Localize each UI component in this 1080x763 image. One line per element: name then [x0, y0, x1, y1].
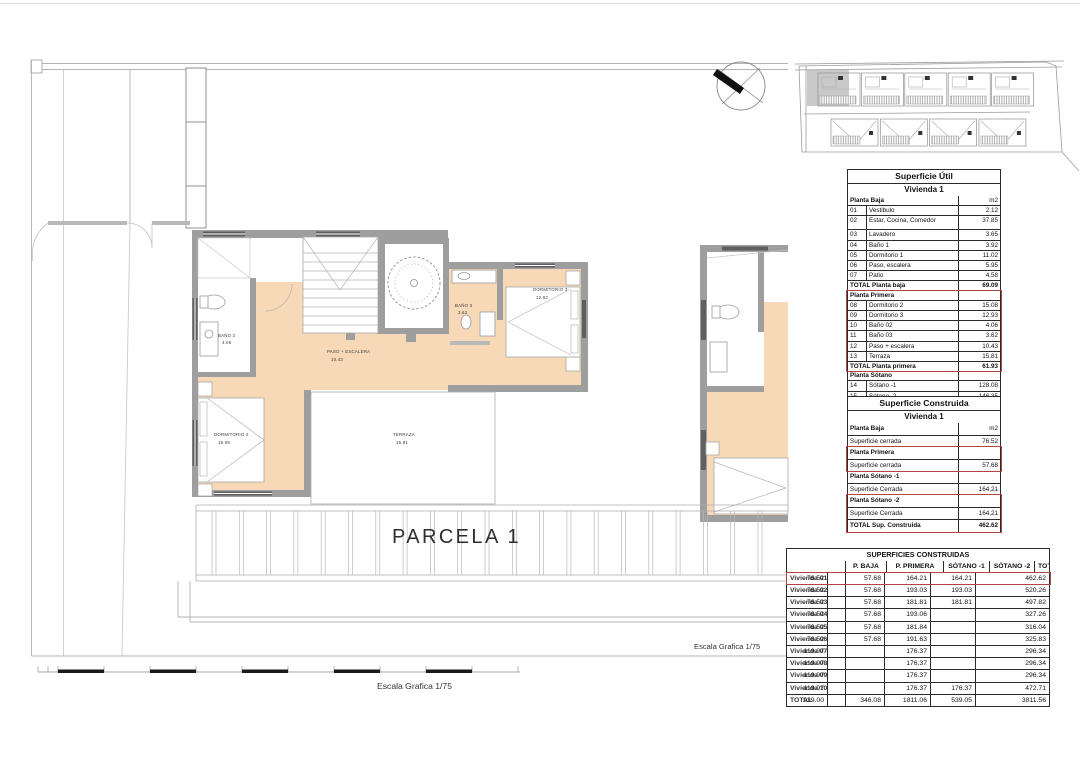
row-label: Vivienda 03 [787, 597, 846, 608]
value-cell: 296.34 [976, 670, 1049, 681]
value-cell: 316.04 [976, 622, 1049, 633]
room-area-bano3: 3.62 [458, 310, 468, 315]
row-number: 11 [848, 331, 867, 340]
construida-value [959, 471, 1000, 483]
construida-value [959, 495, 1000, 507]
table-section: Planta Sótano -1Superficie Cerrada164,21 [848, 471, 1000, 495]
site-plan-overview [795, 61, 1079, 171]
construida-row: Planta Sótano -2 [848, 495, 1000, 507]
construida-label: Superficie Cerrada [848, 484, 959, 496]
table-row-vivienda-10: Vivienda 10119.97176.37176.37472.71 [787, 682, 1049, 694]
room-name: Estar, Cocina, Comedor [867, 216, 959, 229]
table-row-vivienda-08: Vivienda 08119.97176.37296.34 [787, 657, 1049, 669]
bed-dormitorio2 [198, 382, 264, 496]
room-name: Sótano -1 [867, 381, 959, 390]
section-header: Planta Baja [848, 196, 959, 205]
room-area: 15.08 [959, 301, 1000, 310]
room-name: Baño 03 [867, 331, 959, 340]
room-label-dormitorio2: DORMITORIO 2 [214, 432, 249, 437]
row-label: Vivienda 05 [787, 622, 846, 633]
fence-element [32, 68, 206, 261]
table-title-row: Superficie Útil [848, 170, 1000, 183]
room-area: 11.02 [959, 251, 1000, 260]
superficies-construidas-table: SUPERFICIES CONSTRUIDAS P. BAJAP. PRIMER… [786, 548, 1050, 707]
room-label-dormitorio3: DORMITORIO 3 [533, 287, 568, 292]
construida-label: Superficie cerrada [848, 460, 959, 472]
room-area: 37.85 [959, 216, 1000, 229]
table-row-total: TOTAL939.00346.081811.06539.053811.56 [787, 694, 1049, 706]
room-area: 3.92 [959, 241, 1000, 250]
section-header-row: Planta Primera [848, 291, 1000, 300]
value-cell: 3811.56 [976, 695, 1049, 706]
construida-row: Planta Bajam2 [848, 423, 1000, 435]
row-number: 13 [848, 352, 867, 361]
value-cell: 181.81 [885, 597, 931, 608]
construida-row: Superficie cerrada57.68 [848, 459, 1000, 472]
room-label-terraza: TERRAZA [393, 432, 415, 437]
row-number: 02 [848, 216, 867, 229]
staircase [303, 237, 378, 333]
value-cell: 191.63 [885, 634, 931, 645]
room-area: 5.95 [959, 261, 1000, 270]
room-label-bano2: BAÑO 2 [218, 333, 236, 338]
row-number: 01 [848, 206, 867, 215]
construida-value: m2 [959, 423, 1000, 435]
construida-label: Planta Sótano -1 [848, 471, 959, 483]
room-label-paso: PASO + ESCALERA [327, 349, 370, 354]
value-cell: 539.05 [931, 695, 976, 706]
row-number: 04 [848, 241, 867, 250]
table-section: Planta Sótano -2Superficie Cerrada164,21… [848, 495, 1000, 532]
value-cell: 520.26 [976, 585, 1049, 596]
unit-cell [959, 291, 1000, 300]
section-header: Planta Sótano [848, 371, 959, 380]
construida-value: 164,21 [959, 484, 1000, 496]
room-area-terraza: 15.81 [396, 440, 408, 445]
area-row: 12Paso + escalera10.43 [848, 341, 1000, 351]
column-header: SÓTANO -2 [990, 561, 1035, 572]
scale-bar [38, 666, 520, 673]
room-name: Vestibulo [867, 206, 959, 215]
row-label: Vivienda 02 [787, 585, 846, 596]
value-cell: 181.81 [931, 597, 976, 608]
total-value: 69.09 [959, 281, 1000, 290]
column-header: TOTAL [1035, 561, 1049, 572]
value-cell [931, 646, 976, 657]
value-cell: 176.37 [931, 683, 976, 694]
room-area: 3.65 [959, 230, 1000, 239]
table-subtitle: Vivienda 1 [848, 411, 1000, 423]
area-row: 14Sótano -1128.08 [848, 380, 1000, 390]
value-cell: 193.06 [885, 609, 931, 620]
room-name: Dormitorio 1 [867, 251, 959, 260]
row-number: 08 [848, 301, 867, 310]
room-name: Baño 02 [867, 321, 959, 330]
value-cell [931, 609, 976, 620]
area-row: 09Dormitorio 312.93 [848, 310, 1000, 320]
construida-value: 462.62 [959, 520, 1000, 532]
area-row: 05Dormitorio 111.02 [848, 250, 1000, 260]
superficie-util-table: Superficie Útil Vivienda 1 Planta Bajam2… [847, 169, 1001, 412]
table-row-vivienda-04: Vivienda 0476.5257.68193.06327.26 [787, 608, 1049, 620]
terraza-area [311, 392, 495, 504]
total-label: TOTAL Planta primera [848, 362, 959, 371]
area-row: 13Terraza15.81 [848, 351, 1000, 361]
room-area: 15.81 [959, 352, 1000, 361]
row-number: 03 [848, 230, 867, 239]
patio-tree-icon [388, 257, 440, 309]
row-label: Vivienda 01 [787, 573, 846, 584]
construida-row: Superficie cerrada76.52 [848, 435, 1000, 448]
area-row: 08Dormitorio 215.08 [848, 300, 1000, 310]
unit-cell: m2 [959, 196, 1000, 205]
construida-row: Planta Sótano -1 [848, 471, 1000, 483]
room-area: 12.93 [959, 311, 1000, 320]
column-header-row: P. BAJAP. PRIMERASÓTANO -1SÓTANO -2TOTAL [787, 561, 1049, 572]
area-row: 04Baño 13.92 [848, 240, 1000, 250]
table-title-row: Superficie Construida [848, 397, 1000, 410]
room-area: 128.08 [959, 381, 1000, 390]
scale-label-plan: Escala Grafica 1/75 [694, 642, 760, 651]
unit-cell [959, 371, 1000, 380]
row-label: Vivienda 04 [787, 609, 846, 620]
area-row: 01Vestibulo2.12 [848, 205, 1000, 215]
value-cell: 497.82 [976, 597, 1049, 608]
construida-label: Planta Sótano -2 [848, 495, 959, 507]
wardrobe [198, 238, 250, 278]
construida-label: Planta Primera [848, 447, 959, 459]
area-row: 07Patio4.58 [848, 270, 1000, 280]
row-number: 09 [848, 311, 867, 320]
construida-label: Planta Baja [848, 423, 959, 435]
row-label: Vivienda 10 [787, 683, 846, 694]
construida-row: Planta Primera [848, 447, 1000, 459]
construida-label: Superficie Cerrada [848, 508, 959, 520]
room-label-bano3: BAÑO 3 [455, 303, 473, 308]
construida-row: Superficie Cerrada164,21 [848, 507, 1000, 520]
table-row-vivienda-02: Vivienda 0276.5257.68193.03193.03520.26 [787, 584, 1049, 596]
value-cell: 472.71 [976, 683, 1049, 694]
construida-label: TOTAL Sup. Construida [848, 520, 959, 532]
table-subtitle-row: Vivienda 1 [848, 410, 1000, 423]
total-row: TOTAL Planta baja69.09 [848, 280, 1000, 290]
room-area: 4.58 [959, 271, 1000, 280]
value-cell: 176.37 [885, 683, 931, 694]
row-number: 06 [848, 261, 867, 270]
room-name: Dormitorio 2 [867, 301, 959, 310]
room-area: 2.12 [959, 206, 1000, 215]
row-number: 14 [848, 381, 867, 390]
room-area-bano2: 4.06 [222, 340, 232, 345]
room-name: Baño 1 [867, 241, 959, 250]
value-cell: 193.03 [885, 585, 931, 596]
superficie-construida-table: Superficie Construida Vivienda 1 Planta … [847, 396, 1001, 533]
room-area-dormitorio2: 15.08 [218, 440, 230, 445]
table-row-vivienda-09: Vivienda 09119.97176.37296.34 [787, 669, 1049, 681]
value-cell [931, 622, 976, 633]
column-header: SÓTANO -1 [944, 561, 990, 572]
room-name: Paso, escalera [867, 261, 959, 270]
row-label: Vivienda 06 [787, 634, 846, 645]
table-title-row: SUPERFICIES CONSTRUIDAS [787, 549, 1049, 561]
value-cell: 164.21 [931, 573, 976, 584]
construida-value [959, 447, 1000, 459]
value-cell: 164.21 [885, 573, 931, 584]
row-label: TOTAL [787, 695, 846, 706]
area-row: 02Estar, Cocina, Comedor37.85 [848, 215, 1000, 229]
room-area: 10.43 [959, 342, 1000, 351]
table-section: Planta Bajam2Superficie cerrada76.52 [848, 423, 1000, 447]
section-header-row: Planta Sótano [848, 371, 1000, 380]
total-value: 61.93 [959, 362, 1000, 371]
construida-row: Superficie Cerrada164,21 [848, 483, 1000, 496]
value-cell: 176.37 [885, 670, 931, 681]
table-subtitle: Vivienda 1 [848, 184, 1000, 196]
table-title: Superficie Útil [848, 170, 1000, 183]
room-name: Lavadero [867, 230, 959, 239]
row-label: Vivienda 07 [787, 646, 846, 657]
table-row-vivienda-05: Vivienda 0576.5257.68181.84316.04 [787, 621, 1049, 633]
construida-value: 76.52 [959, 436, 1000, 448]
value-cell: 193.03 [931, 585, 976, 596]
value-cell: 176.37 [885, 646, 931, 657]
column-header: P. BAJA [846, 561, 887, 572]
room-name: Terraza [867, 352, 959, 361]
value-cell: 325.83 [976, 634, 1049, 645]
row-label: Vivienda 09 [787, 670, 846, 681]
construida-label: Superficie cerrada [848, 436, 959, 448]
value-cell: 176.37 [885, 658, 931, 669]
room-name: Patio [867, 271, 959, 280]
row-number: 12 [848, 342, 867, 351]
value-cell: 462.62 [976, 573, 1049, 584]
column-header [787, 561, 846, 572]
table-title: Superficie Construida [848, 397, 1000, 410]
row-number: 05 [848, 251, 867, 260]
value-cell [931, 658, 976, 669]
table-row-vivienda-06: Vivienda 0676.5257.68191.63325.83 [787, 633, 1049, 645]
room-name: Paso + escalera [867, 342, 959, 351]
section-header: Planta Primera [848, 291, 959, 300]
area-row: 06Paso, escalera5.95 [848, 260, 1000, 270]
table-row-vivienda-01: Vivienda 0176.5257.68164.21164.21462.62 [787, 572, 1049, 584]
value-cell: 296.34 [976, 646, 1049, 657]
value-cell: 181.84 [885, 622, 931, 633]
scale-label-bar: Escala Grafica 1/75 [377, 681, 452, 691]
table-section: Planta Bajam201Vestibulo2.1202Estar, Coc… [848, 196, 1000, 291]
construida-row: TOTAL Sup. Construida462.62 [848, 519, 1000, 532]
construida-value: 164,21 [959, 508, 1000, 520]
row-number: 07 [848, 271, 867, 280]
area-row: 03Lavadero3.65 [848, 229, 1000, 239]
table-section: Planta PrimeraSuperficie cerrada57.68 [848, 447, 1000, 471]
construida-value: 57.68 [959, 460, 1000, 472]
value-cell [931, 634, 976, 645]
area-row: 10Baño 024.06 [848, 320, 1000, 330]
total-row: TOTAL Planta primera61.93 [848, 361, 1000, 371]
table-section: Planta Primera08Dormitorio 215.0809Dormi… [848, 291, 1000, 372]
column-header: P. PRIMERA [887, 561, 944, 572]
room-name: Dormitorio 3 [867, 311, 959, 320]
plan-sheet: BAÑO 2 4.06 PASO + ESCALERA 10.43 DORMIT… [0, 0, 1080, 763]
section-header-row: Planta Bajam2 [848, 196, 1000, 205]
row-label: Vivienda 08 [787, 658, 846, 669]
table-title: SUPERFICIES CONSTRUIDAS [787, 549, 1049, 561]
row-number: 10 [848, 321, 867, 330]
value-cell: 1811.06 [885, 695, 931, 706]
table-row-vivienda-07: Vivienda 07119.97176.37296.34 [787, 645, 1049, 657]
room-area-paso: 10.43 [331, 357, 343, 362]
room-area: 3.62 [959, 331, 1000, 340]
total-label: TOTAL Planta baja [848, 281, 959, 290]
value-cell [931, 670, 976, 681]
room-area: 4.06 [959, 321, 1000, 330]
value-cell: 327.26 [976, 609, 1049, 620]
value-cell: 296.34 [976, 658, 1049, 669]
area-row: 11Baño 033.62 [848, 330, 1000, 340]
parcel-label: PARCELA 1 [392, 526, 521, 548]
room-area-dormitorio3: 12.93 [536, 295, 548, 300]
table-row-vivienda-03: Vivienda 0376.5257.68181.81181.81497.82 [787, 596, 1049, 608]
table-subtitle-row: Vivienda 1 [848, 183, 1000, 196]
